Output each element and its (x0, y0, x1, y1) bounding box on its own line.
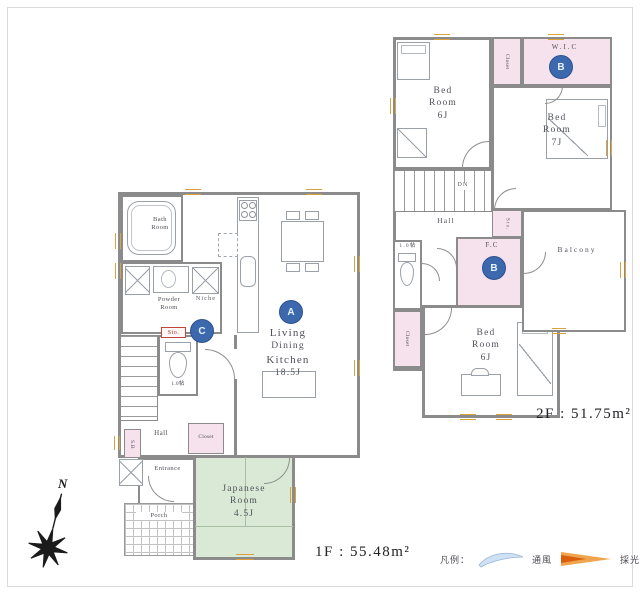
corridor-wall (234, 335, 237, 349)
balcony (522, 210, 626, 332)
wind-arrow-icon (476, 549, 526, 569)
porch-label: Porch (136, 512, 182, 520)
storage-label: Sto. (161, 327, 186, 338)
futon-mat (397, 128, 427, 158)
hall-1f-label: Hall (144, 429, 178, 438)
window-marker (236, 554, 254, 560)
porch (124, 503, 197, 556)
window-marker (434, 34, 450, 40)
niche-label: Niche (191, 296, 221, 304)
stairs-2f (393, 170, 492, 212)
bedroom-s-label: Bed Room 6J (456, 327, 516, 364)
closet-top-label: Closet (503, 43, 510, 81)
floor2-area-label: 2F : 51.75m² (536, 406, 631, 423)
dining-chair (286, 263, 300, 272)
window-marker (606, 140, 612, 156)
legend: 凡例： 通風 採光 (440, 549, 640, 569)
washing-machine (125, 266, 150, 295)
bath-room-label: BathRoom (133, 216, 187, 233)
window-marker (306, 189, 322, 195)
compass: N (18, 472, 98, 582)
bed-nw-pillow (401, 45, 426, 54)
window-marker (115, 233, 121, 249)
marker-b2: B (482, 256, 506, 280)
window-marker (460, 414, 476, 420)
light-arrow-icon (558, 550, 614, 568)
stairs-dn-label: DN (455, 182, 471, 190)
marker-b1: B (549, 55, 573, 79)
window-marker (115, 263, 121, 279)
bedroom-nw-label: Bed Room 6J (414, 85, 472, 122)
window-marker (114, 436, 120, 450)
dining-table (281, 221, 324, 262)
stove-burner (249, 202, 256, 209)
balcony-label: Balcony (546, 245, 608, 255)
family-closet-label: F.C (478, 241, 506, 250)
window-marker (548, 34, 564, 40)
window-marker (354, 256, 360, 272)
toilet-1f-size: 1.0帖 (161, 381, 195, 388)
bed-s-blanket (519, 344, 551, 384)
desk-chair (471, 368, 489, 376)
window-marker (390, 98, 396, 114)
toilet-tank (165, 342, 191, 352)
dining-chair (286, 211, 300, 220)
powder-room-label: PowderRoom (146, 296, 192, 313)
legend-title: 凡例： (440, 553, 470, 566)
f2-step-wall (393, 368, 422, 371)
window-marker (552, 328, 566, 334)
stove-burner (241, 202, 248, 209)
toilet-2f-tank (398, 253, 416, 262)
stove-burner (241, 211, 248, 218)
compass-north-label: N (57, 476, 68, 491)
bed-e-pillow (598, 105, 606, 127)
storage-2f-label: Sto. (503, 213, 510, 235)
dining-chair (305, 263, 319, 272)
legend-wind-label: 通風 (532, 553, 552, 566)
floor1-area-label: 1F : 55.48m² (315, 544, 410, 561)
window-marker (290, 487, 296, 503)
entrance-shoe-cabinet (119, 459, 143, 486)
kitchen-sink (240, 256, 256, 287)
stove-burner (249, 211, 256, 218)
entrance-label: Entrance (140, 465, 195, 473)
tatami-line (195, 526, 293, 527)
desk (461, 374, 501, 396)
bedroom-e-label: Bed Room 7J (527, 112, 587, 149)
window-marker (496, 414, 512, 420)
corridor-wall (234, 379, 237, 458)
stairs-1f (120, 335, 158, 421)
japanese-room-label: Japanese Room 4.5J (204, 483, 284, 520)
legend-light-label: 採光 (620, 553, 640, 566)
window-marker (620, 262, 626, 278)
marker-c: C (190, 319, 214, 343)
window-marker (185, 189, 201, 195)
niche-box (192, 267, 219, 294)
hall-2f-label: Hall (430, 216, 462, 226)
closet-1f-label: Closet (189, 434, 223, 441)
refrigerator-space (218, 233, 238, 257)
marker-a: A (279, 300, 303, 324)
shoe-box-label: S.B (128, 432, 135, 456)
floor-plan-page: BathRoom PowderRoom Niche Sto. A Living (0, 0, 640, 593)
window-marker (354, 360, 360, 376)
wic-label: W.I.C (540, 43, 590, 52)
wash-basin (161, 270, 176, 288)
f2-left-wall (393, 212, 396, 240)
dining-chair (305, 211, 319, 220)
closet-left-2f-label: Closet (403, 317, 410, 361)
ldk-label: Living Dining Kitchen 18.5J (248, 326, 328, 379)
